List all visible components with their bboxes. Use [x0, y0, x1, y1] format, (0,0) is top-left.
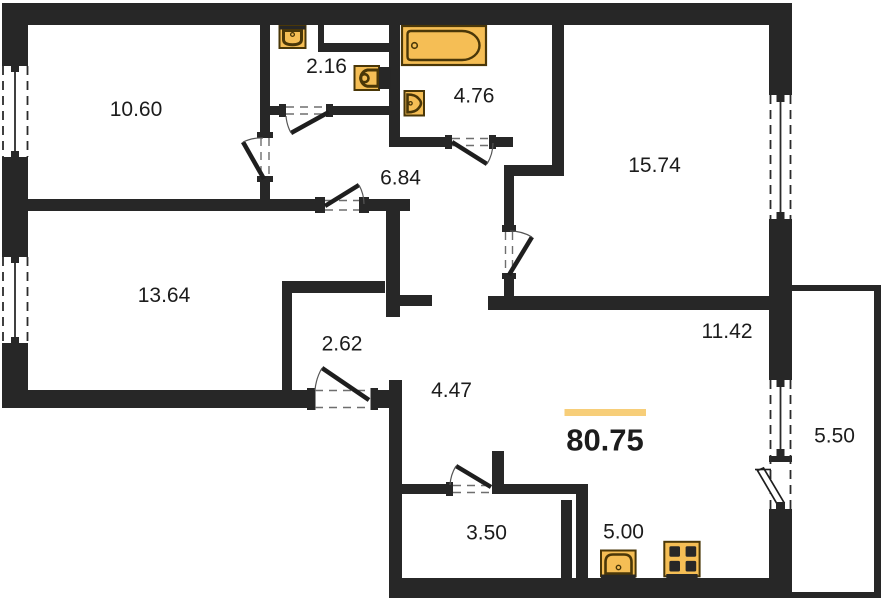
svg-text:5.00: 5.00 [603, 521, 644, 544]
svg-text:4.47: 4.47 [431, 379, 472, 402]
svg-text:3.50: 3.50 [466, 522, 507, 545]
svg-text:10.60: 10.60 [110, 98, 163, 121]
svg-text:2.16: 2.16 [306, 55, 347, 78]
svg-text:80.75: 80.75 [566, 423, 644, 458]
svg-text:5.50: 5.50 [814, 425, 855, 448]
svg-text:2.62: 2.62 [322, 333, 363, 356]
svg-text:4.76: 4.76 [454, 85, 495, 108]
svg-text:13.64: 13.64 [138, 284, 191, 307]
svg-text:11.42: 11.42 [702, 320, 753, 343]
svg-text:6.84: 6.84 [380, 167, 421, 190]
svg-text:15.74: 15.74 [628, 154, 681, 177]
